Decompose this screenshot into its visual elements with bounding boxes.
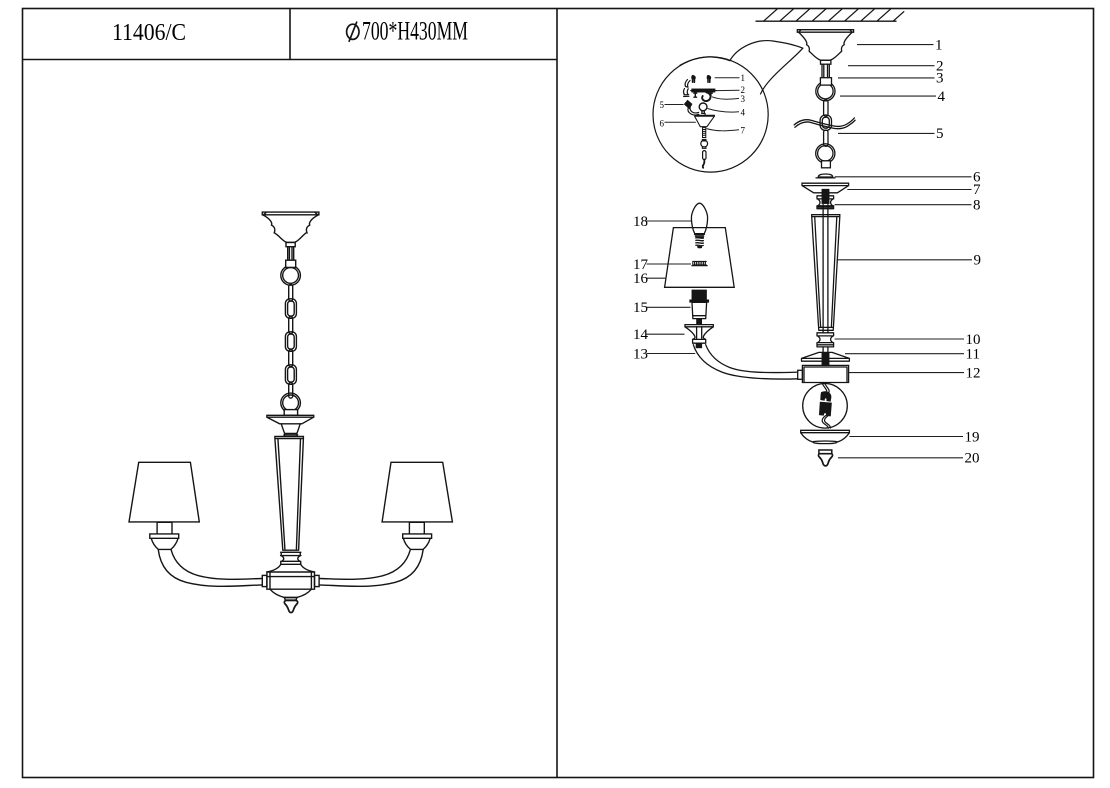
svg-text:11: 11 (966, 347, 980, 363)
svg-text:9: 9 (974, 253, 982, 269)
svg-text:5: 5 (660, 100, 665, 110)
svg-text:1: 1 (741, 73, 746, 83)
svg-text:7: 7 (973, 182, 981, 198)
svg-text:20: 20 (965, 451, 980, 467)
svg-text:1: 1 (935, 37, 943, 53)
svg-text:7: 7 (741, 125, 746, 135)
svg-text:700*H430MM: 700*H430MM (362, 17, 468, 46)
svg-text:15: 15 (633, 300, 648, 316)
svg-text:16: 16 (633, 271, 649, 287)
svg-text:4: 4 (741, 107, 746, 117)
svg-text:18: 18 (633, 214, 648, 230)
svg-text:3: 3 (741, 94, 746, 104)
svg-text:11406/C: 11406/C (112, 20, 186, 46)
svg-text:8: 8 (973, 197, 981, 213)
svg-text:3: 3 (936, 71, 944, 87)
svg-text:6: 6 (660, 118, 665, 128)
svg-text:19: 19 (965, 429, 980, 445)
svg-text:4: 4 (938, 89, 946, 105)
svg-text:14: 14 (633, 327, 649, 343)
svg-text:12: 12 (966, 365, 981, 381)
svg-text:5: 5 (936, 126, 944, 142)
svg-text:13: 13 (633, 346, 648, 362)
svg-text:10: 10 (966, 332, 981, 348)
